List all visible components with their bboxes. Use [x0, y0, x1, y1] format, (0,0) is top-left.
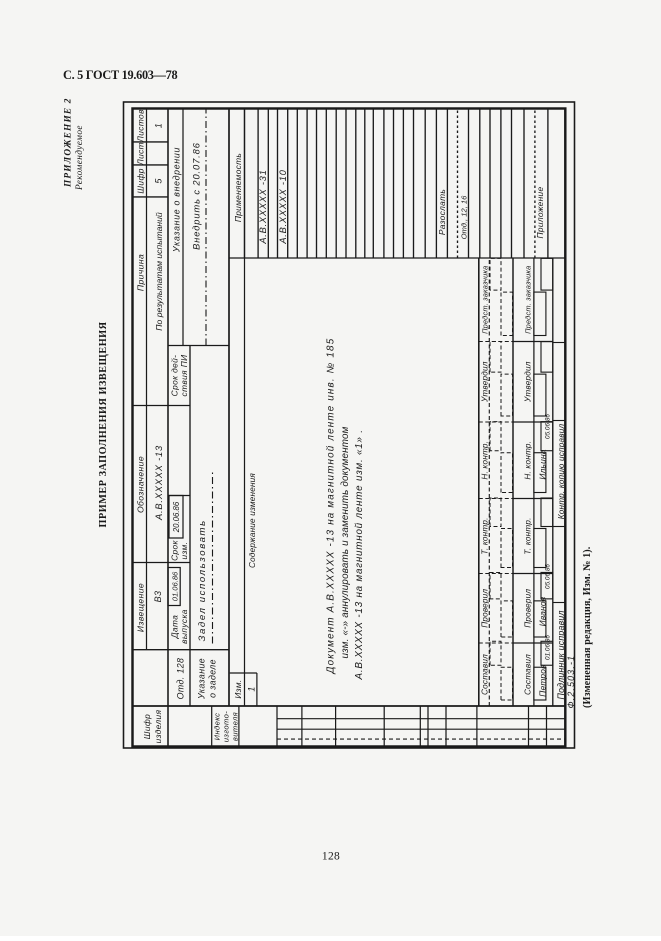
- svg-text:20.06.86: 20.06.86: [172, 501, 181, 533]
- svg-text:1: 1: [247, 686, 257, 691]
- svg-text:(Измененная редакция, Изм. № 1: (Измененная редакция, Изм. № 1).: [582, 546, 593, 708]
- svg-text:Составил: Составил: [481, 654, 490, 695]
- svg-text:Т. контр.: Т. контр.: [524, 517, 533, 554]
- svg-text:ПРИМЕР ЗАПОЛНЕНИЯ ИЗВЕЩЕНИЯ: ПРИМЕР ЗАПОЛНЕНИЯ ИЗВЕЩЕНИЯ: [98, 321, 109, 527]
- svg-text:С. 5 ГОСТ 19.603—78: С. 5 ГОСТ 19.603—78: [63, 68, 178, 82]
- svg-text:128: 128: [322, 851, 340, 863]
- svg-text:Н. контр.: Н. контр.: [481, 441, 490, 480]
- svg-text:вителя: вителя: [230, 712, 239, 741]
- svg-text:Приложение: Приложение: [535, 187, 545, 239]
- svg-text:Внедрить с 20.07.86: Внедрить с 20.07.86: [192, 142, 202, 250]
- svg-text:05.06.86: 05.06.86: [545, 564, 552, 589]
- svg-text:Изм.: Изм.: [233, 679, 243, 698]
- svg-text:Листов: Листов: [136, 109, 146, 143]
- svg-text:Н. контр.: Н. контр.: [524, 441, 533, 480]
- svg-text:Утвердил: Утвердил: [524, 361, 533, 403]
- svg-text:Контр. копию исправил: Контр. копию исправил: [557, 424, 566, 520]
- svg-text:Содержание изменения: Содержание изменения: [248, 473, 257, 568]
- svg-text:Составил: Составил: [524, 654, 533, 695]
- svg-text:Документ А.В.ХХХХХ -13 на ма: Документ А.В.ХХХХХ -13 на магнитной лент…: [326, 338, 337, 675]
- svg-text:Проверил: Проверил: [524, 589, 533, 628]
- svg-text:Применяемость: Применяемость: [233, 153, 243, 222]
- svg-text:Индекс: Индекс: [213, 713, 222, 741]
- svg-text:Указание о внедрении: Указание о внедрении: [172, 147, 182, 253]
- svg-text:Подлинник исправил: Подлинник исправил: [556, 610, 566, 699]
- svg-text:Шифр: Шифр: [142, 714, 152, 739]
- svg-text:Шифр: Шифр: [136, 168, 146, 193]
- svg-text:Разослать: Разослать: [437, 189, 447, 235]
- svg-text:01.06.86: 01.06.86: [545, 635, 552, 660]
- svg-text:Петров: Петров: [538, 664, 548, 697]
- svg-text:Предст. заказчика: Предст. заказчика: [481, 266, 490, 334]
- svg-text:изм. «-» аннулировать и замени: изм. «-» аннулировать и заменить докумен…: [340, 426, 351, 658]
- svg-text:выпуска: выпуска: [179, 609, 189, 644]
- svg-text:Проверил: Проверил: [481, 589, 490, 628]
- svg-text:А.В.ХХХХХ -10: А.В.ХХХХХ -10: [278, 169, 288, 244]
- svg-text:А.В.ХХХХХ -31: А.В.ХХХХХ -31: [258, 169, 268, 244]
- svg-text:В3: В3: [153, 591, 163, 603]
- svg-text:Иванов: Иванов: [538, 596, 548, 626]
- svg-text:Отд., 12, 16: Отд., 12, 16: [460, 195, 469, 240]
- svg-text:Отд. 128: Отд. 128: [176, 658, 186, 700]
- svg-text:ПРИЛОЖЕНИЕ 2: ПРИЛОЖЕНИЕ 2: [64, 97, 74, 188]
- svg-text:Срок: Срок: [170, 539, 180, 560]
- svg-text:Лист: Лист: [136, 142, 146, 166]
- svg-text:Утвердил: Утвердил: [481, 361, 490, 403]
- svg-text:Причина: Причина: [136, 254, 146, 291]
- svg-text:Т. контр.: Т. контр.: [481, 517, 490, 554]
- svg-text:Задел использовать: Задел использовать: [197, 519, 208, 641]
- svg-text:о заделе: о заделе: [208, 659, 218, 698]
- svg-text:05.06.86: 05.06.86: [545, 414, 552, 439]
- svg-text:01.06.86: 01.06.86: [171, 571, 180, 601]
- svg-text:5: 5: [154, 178, 164, 184]
- svg-text:Ф.2.503.-1: Ф.2.503.-1: [566, 655, 576, 709]
- svg-text:По результатам испытаний: По результатам испытаний: [154, 212, 164, 331]
- svg-text:изгото-: изгото-: [222, 711, 231, 742]
- svg-text:Обозначение: Обозначение: [136, 456, 146, 513]
- svg-text:1: 1: [154, 123, 164, 128]
- svg-text:изделия: изделия: [153, 709, 163, 743]
- svg-text:Предст. заказчика: Предст. заказчика: [524, 266, 533, 334]
- svg-text:Рекомендуемое: Рекомендуемое: [74, 125, 85, 191]
- svg-text:А.В.ХХХХХ -13 на магнитной лен: А.В.ХХХХХ -13 на магнитной ленте изм. «1…: [354, 429, 365, 680]
- svg-text:ствия ПИ: ствия ПИ: [179, 355, 189, 397]
- svg-text:Извещение: Извещение: [136, 583, 146, 632]
- svg-text:изм.: изм.: [179, 542, 189, 560]
- svg-text:Дата: Дата: [170, 615, 180, 640]
- svg-text:Ильина: Ильина: [538, 449, 548, 479]
- svg-text:Указание: Указание: [197, 658, 207, 700]
- svg-text:Срок дей-: Срок дей-: [170, 355, 180, 397]
- svg-text:А.В.ХХХХХ -13: А.В.ХХХХХ -13: [154, 445, 164, 521]
